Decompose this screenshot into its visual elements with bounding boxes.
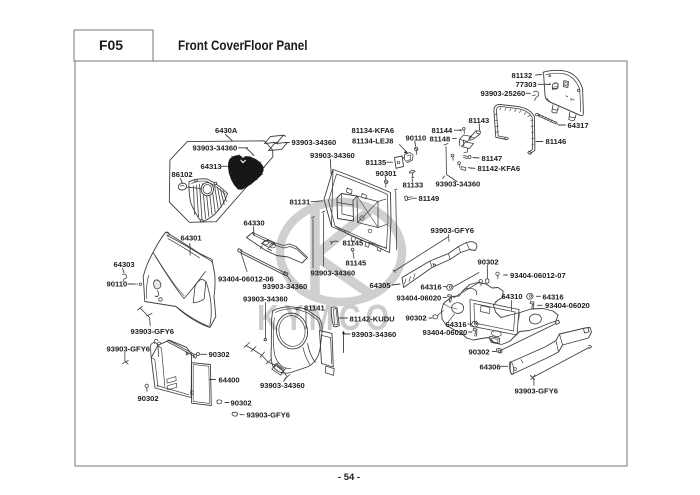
svg-text:93903-GFY6: 93903-GFY6 [247, 411, 290, 420]
svg-text:93903-GFY6: 93903-GFY6 [515, 387, 558, 396]
svg-text:64317: 64317 [568, 121, 589, 130]
svg-text:81141: 81141 [304, 304, 325, 313]
svg-text:81142-KUDU: 81142-KUDU [350, 314, 396, 323]
svg-text:6430A: 6430A [215, 126, 238, 135]
svg-text:64301: 64301 [181, 234, 203, 243]
svg-text:81148: 81148 [430, 134, 451, 143]
svg-text:64310: 64310 [502, 292, 523, 301]
svg-text:64303: 64303 [114, 260, 135, 269]
svg-text:81131: 81131 [290, 198, 311, 207]
svg-text:64305: 64305 [370, 281, 392, 290]
svg-text:64306: 64306 [480, 362, 501, 371]
svg-text:81146: 81146 [546, 137, 567, 146]
svg-text:93903-34360: 93903-34360 [260, 381, 305, 390]
svg-text:81135: 81135 [366, 158, 387, 167]
svg-text:90302: 90302 [469, 347, 490, 356]
svg-text:93903-34360: 93903-34360 [436, 180, 481, 189]
svg-text:90110: 90110 [406, 134, 427, 143]
svg-text:81134-LEJ8: 81134-LEJ8 [352, 137, 393, 146]
svg-text:93404-06012-07: 93404-06012-07 [510, 271, 566, 280]
svg-text:93903-25260: 93903-25260 [481, 89, 526, 98]
svg-text:- 54 -: - 54 - [338, 472, 360, 483]
svg-text:93404-06020: 93404-06020 [423, 328, 468, 337]
svg-text:81134-KFA6: 81134-KFA6 [352, 126, 395, 135]
svg-text:90302: 90302 [231, 398, 252, 407]
svg-text:90110: 90110 [107, 280, 128, 289]
svg-text:90302: 90302 [138, 394, 159, 403]
svg-text:93903-34360: 93903-34360 [193, 143, 238, 152]
svg-text:81143: 81143 [469, 116, 490, 125]
svg-text:93903-GFY6: 93903-GFY6 [131, 327, 174, 336]
svg-text:81132: 81132 [512, 71, 533, 80]
svg-text:93903-34360: 93903-34360 [311, 268, 356, 277]
svg-text:64313: 64313 [201, 162, 222, 171]
svg-text:81145: 81145 [346, 258, 367, 267]
svg-text:F05: F05 [99, 37, 123, 53]
svg-text:64400: 64400 [219, 375, 240, 384]
svg-text:93903-GFY6: 93903-GFY6 [107, 345, 150, 354]
svg-text:93404-06020: 93404-06020 [397, 293, 442, 302]
svg-text:81133: 81133 [403, 180, 424, 189]
svg-text:81149: 81149 [419, 194, 440, 203]
svg-text:81147: 81147 [482, 154, 503, 163]
svg-text:93903-GFY6: 93903-GFY6 [431, 226, 474, 235]
svg-text:Front CoverFloor Panel: Front CoverFloor Panel [178, 37, 308, 53]
svg-text:93903-34360: 93903-34360 [292, 138, 337, 147]
svg-text:93903-34360: 93903-34360 [352, 330, 397, 339]
svg-text:93903-34360: 93903-34360 [310, 151, 355, 160]
svg-text:86102: 86102 [172, 170, 193, 179]
svg-text:90302: 90302 [406, 314, 427, 323]
svg-text:81142-KFA6: 81142-KFA6 [478, 164, 521, 173]
svg-text:81145: 81145 [343, 238, 364, 247]
svg-text:90302: 90302 [478, 257, 499, 266]
svg-text:90301: 90301 [376, 169, 398, 178]
svg-text:93903-34360: 93903-34360 [263, 282, 308, 291]
svg-text:64316: 64316 [421, 282, 442, 291]
svg-text:64330: 64330 [244, 219, 265, 228]
svg-text:90302: 90302 [209, 350, 230, 359]
svg-text:77303: 77303 [516, 80, 537, 89]
svg-text:93903-34360: 93903-34360 [243, 294, 288, 303]
svg-text:93404-06020: 93404-06020 [545, 301, 590, 310]
svg-text:64316: 64316 [543, 292, 564, 301]
